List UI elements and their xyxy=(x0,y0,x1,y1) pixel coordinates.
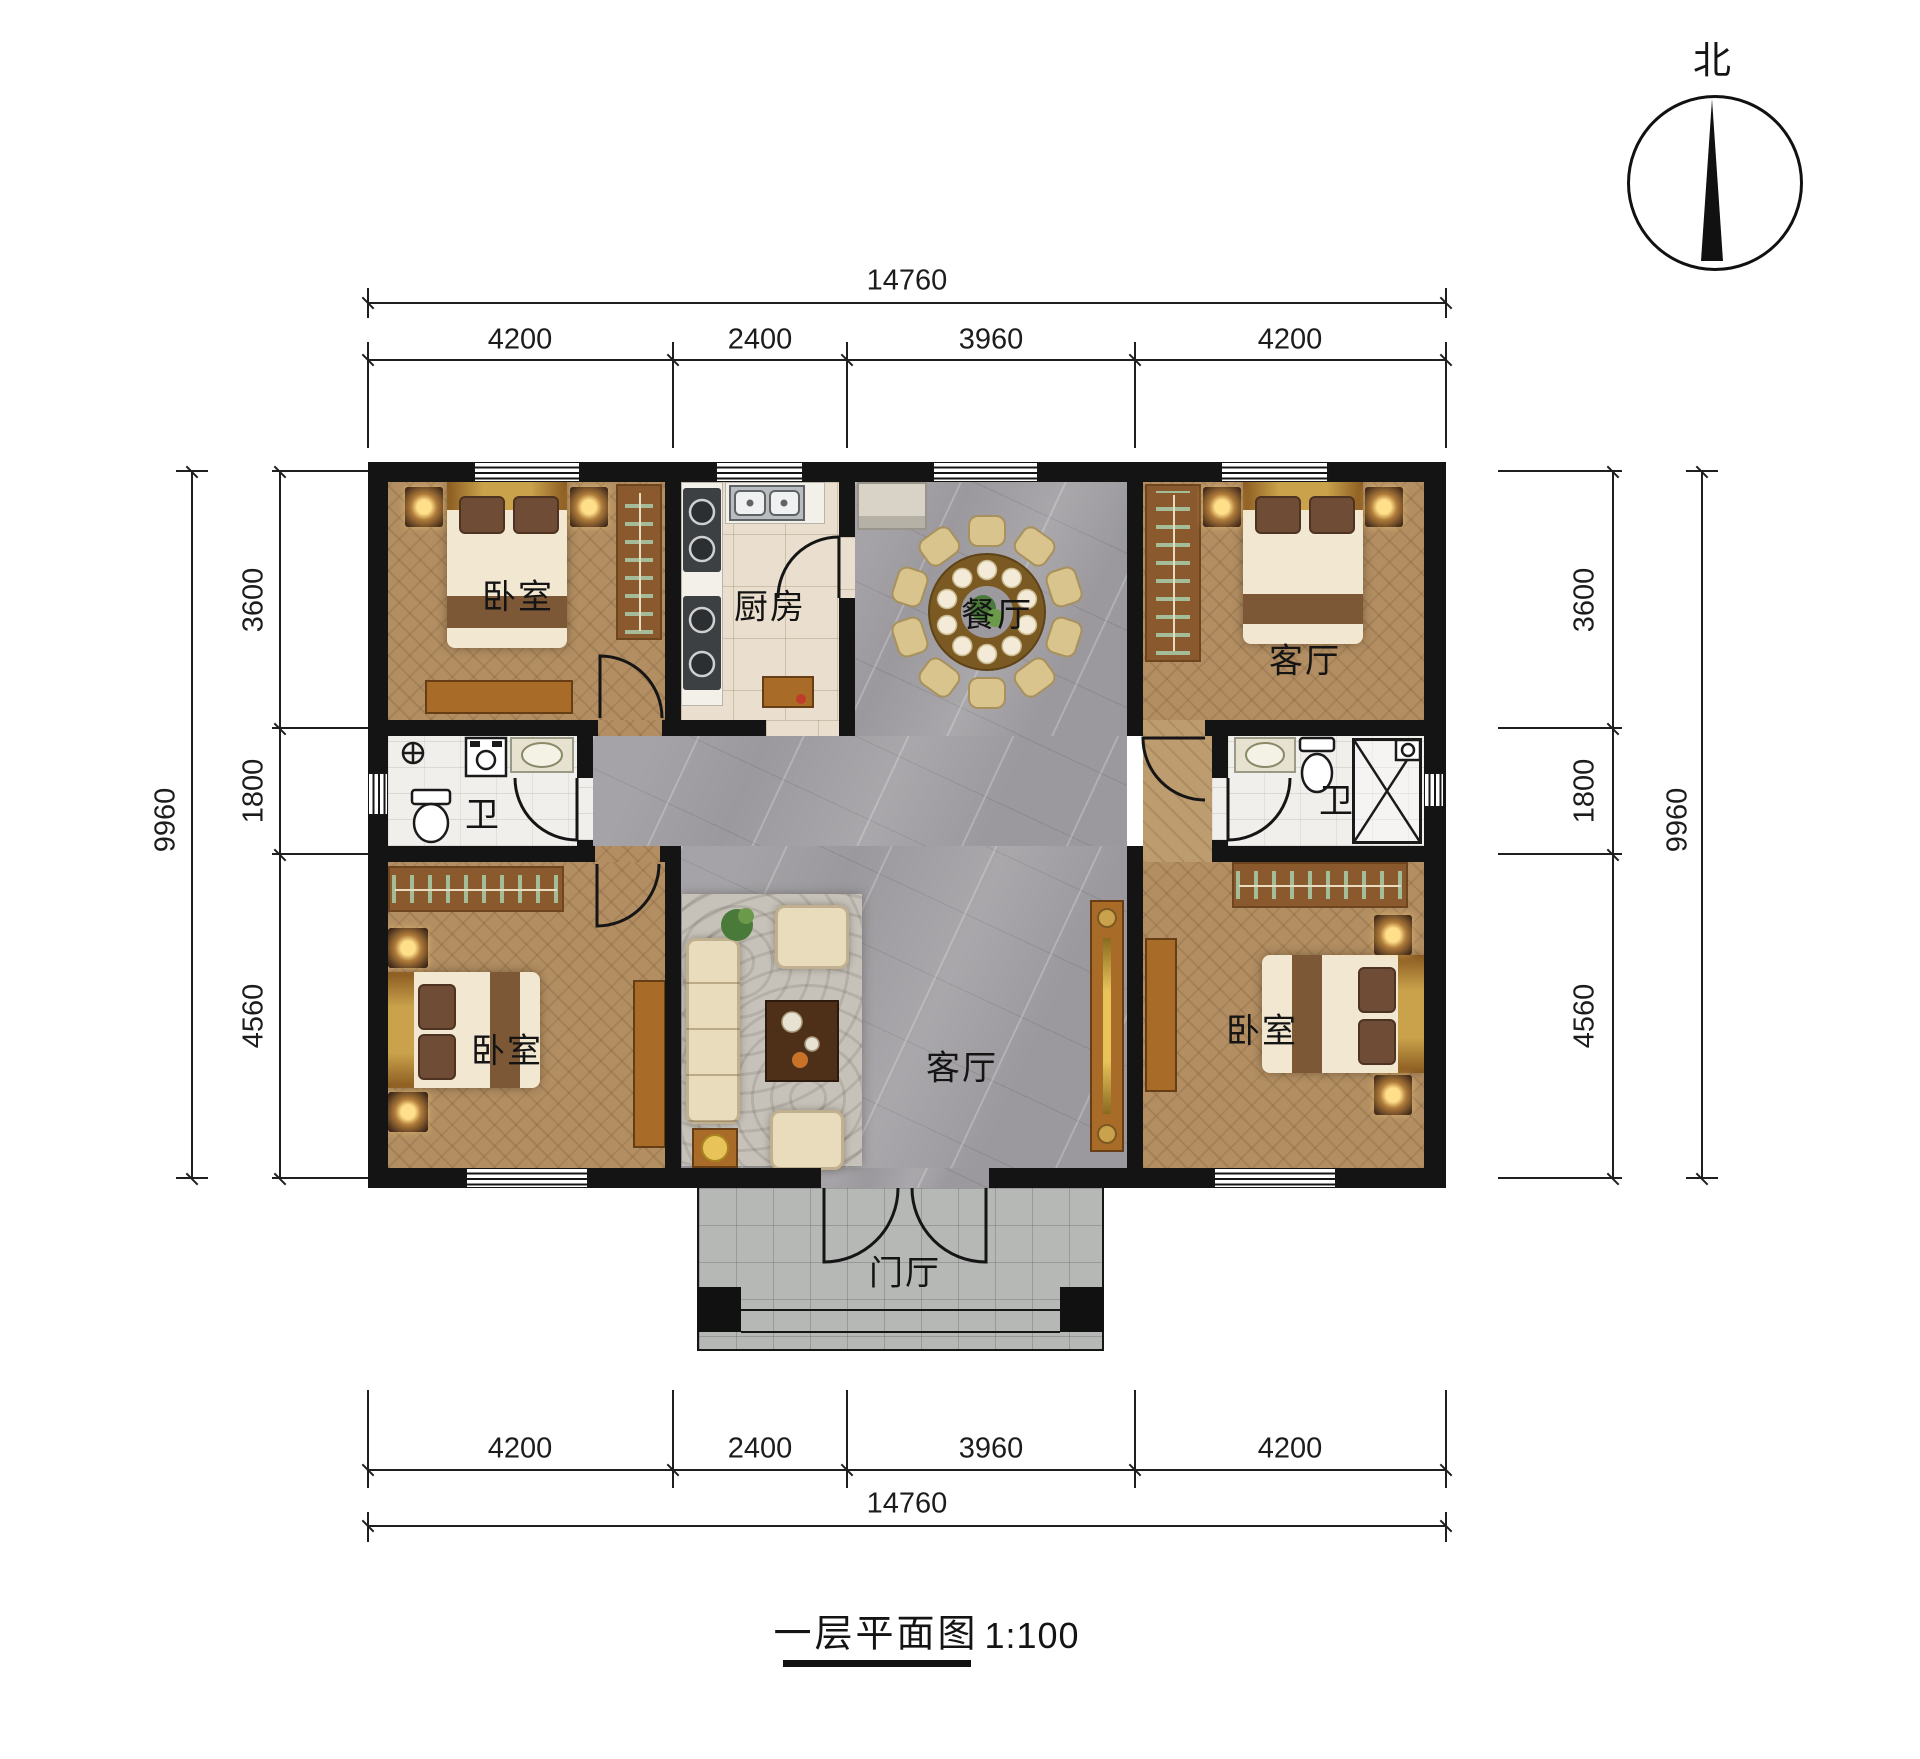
cutting-board-bowl xyxy=(796,694,806,704)
dim-tick xyxy=(1498,1177,1622,1179)
bed-top-left xyxy=(447,482,567,648)
dim-bottom-seg-1: 4200 xyxy=(488,1433,553,1466)
wall-mid-right xyxy=(1205,720,1424,736)
dim-line-bottom-total xyxy=(368,1525,1446,1527)
label-bedroom-bottom-right: 卧室 xyxy=(1226,1004,1298,1053)
label-dining: 餐厅 xyxy=(961,588,1033,637)
wall-bed3-top-a xyxy=(388,846,595,862)
wall-kitchen-dining-low xyxy=(839,598,855,736)
dim-bottom-total: 14760 xyxy=(867,1488,948,1521)
patch-bathL-door xyxy=(577,778,593,840)
wall-bathL-right-up xyxy=(577,736,593,778)
porch-pillar-left xyxy=(697,1287,741,1332)
patch-bathR-door xyxy=(1212,778,1228,840)
dim-tick xyxy=(1134,1390,1136,1488)
dim-top-seg-2: 2400 xyxy=(728,324,793,357)
vanity-left xyxy=(510,737,574,773)
compass-icon xyxy=(1627,95,1803,271)
dim-bottom-seg-4: 4200 xyxy=(1258,1433,1323,1466)
tv-console xyxy=(1090,900,1124,1152)
label-foyer: 门厅 xyxy=(869,1246,941,1295)
nightstand xyxy=(1374,1075,1412,1115)
kitchen-cutting-board xyxy=(762,676,814,708)
wardrobe-bottom-left xyxy=(388,866,564,912)
drawing-scale: 1:100 xyxy=(984,1615,1079,1657)
dim-tick xyxy=(672,1390,674,1488)
wall-bed4-top xyxy=(1212,846,1424,862)
wall-mid-left-b xyxy=(662,720,766,736)
floor-plan-canvas: 卧室 厨房 餐厅 客厅 卫 卫 卧室 客厅 卧室 门厅 14760 4200 2… xyxy=(0,0,1920,1759)
armchair-top xyxy=(775,905,849,969)
wardrobe-rail xyxy=(395,889,557,891)
dim-right-seg-3: 4560 xyxy=(1569,984,1602,1049)
bed-pillow xyxy=(418,984,456,1030)
wall-bed3-hall xyxy=(665,846,681,1168)
label-living-top-right: 客厅 xyxy=(1269,634,1341,683)
label-bath-right: 卫 xyxy=(1319,774,1355,823)
drawing-title: 一层平面图 xyxy=(773,1603,978,1658)
wall-outer-bottom-left xyxy=(368,1168,821,1188)
window-kitchen xyxy=(715,463,804,481)
dim-line-left-total xyxy=(191,471,193,1178)
floor-corridor xyxy=(593,736,1127,846)
bed-pillow xyxy=(1255,496,1301,534)
wall-outer-left xyxy=(368,462,388,1188)
label-kitchen: 厨房 xyxy=(734,580,806,629)
nightstand xyxy=(570,487,608,527)
dim-line-right-total xyxy=(1701,471,1703,1178)
window-bedroom-top-left xyxy=(473,463,581,481)
wall-kitchen-dining-up xyxy=(839,482,855,537)
wardrobe-bottom-right xyxy=(1232,862,1408,908)
dim-tick xyxy=(1498,470,1622,472)
window-bedroom-bottom-right xyxy=(1213,1169,1337,1187)
wardrobe-top-left xyxy=(616,484,662,640)
dim-tick xyxy=(846,1390,848,1488)
sofa xyxy=(686,938,740,1124)
dresser-bottom-left xyxy=(633,980,666,1148)
dresser-bottom-right xyxy=(1145,938,1177,1092)
dim-left-seg-1: 3600 xyxy=(238,568,271,633)
wardrobe-rail xyxy=(639,493,641,630)
dim-bottom-seg-3: 3960 xyxy=(959,1433,1024,1466)
wardrobe-rail xyxy=(1173,495,1175,652)
bed-pillow xyxy=(1358,967,1396,1013)
coffee-table xyxy=(765,1000,839,1082)
patch-entry-door xyxy=(821,1168,989,1188)
dim-left-total: 9960 xyxy=(150,788,183,853)
bed-pillow xyxy=(513,496,559,534)
bed-pillow xyxy=(459,496,505,534)
kitchen-stove-2 xyxy=(683,596,721,690)
patch-living2-door xyxy=(1143,720,1205,736)
nightstand xyxy=(1374,915,1412,955)
dim-tick xyxy=(1498,853,1622,855)
dim-line-left-seg xyxy=(279,471,281,1178)
bed-pillow xyxy=(418,1034,456,1080)
fridge xyxy=(857,482,927,530)
porch-step-line-2 xyxy=(741,1331,1060,1333)
dim-right-seg-2: 1800 xyxy=(1569,759,1602,824)
window-living-top-right xyxy=(1220,463,1329,481)
tv-screen xyxy=(1103,938,1111,1114)
dim-top-seg-1: 4200 xyxy=(488,324,553,357)
nightstand xyxy=(1365,487,1403,527)
wall-bathR-left-up xyxy=(1212,736,1228,778)
dim-line-bottom-seg xyxy=(368,1469,1446,1471)
dim-right-seg-1: 3600 xyxy=(1569,568,1602,633)
compass-north-label: 北 xyxy=(1693,30,1733,85)
side-table xyxy=(692,1128,738,1168)
window-dining xyxy=(932,463,1039,481)
dim-tick xyxy=(367,1390,369,1488)
label-living-center: 客厅 xyxy=(926,1041,998,1090)
wall-hall-bed4 xyxy=(1127,846,1143,1168)
wall-mid-left-a xyxy=(388,720,598,736)
dim-top-seg-4: 4200 xyxy=(1258,324,1323,357)
wall-dining-living2 xyxy=(1127,482,1143,736)
kitchen-stove-1 xyxy=(683,488,721,572)
dim-left-seg-3: 4560 xyxy=(238,984,271,1049)
floor-vestibule xyxy=(1143,736,1212,862)
window-bath-left xyxy=(369,772,387,816)
dim-left-seg-2: 1800 xyxy=(238,759,271,824)
window-bath-right xyxy=(1425,772,1443,808)
patch-bedroom1-door xyxy=(598,720,662,736)
bed-headboard xyxy=(1398,955,1424,1073)
dim-line-right-seg xyxy=(1612,471,1614,1178)
vanity-right xyxy=(1234,737,1296,773)
porch-pillar-right xyxy=(1060,1287,1104,1332)
kitchen-sink-counter xyxy=(725,482,825,524)
dim-top-seg-3: 3960 xyxy=(959,324,1024,357)
title-underline xyxy=(783,1660,971,1667)
bed-pillow xyxy=(1358,1019,1396,1065)
shower-stall xyxy=(1352,738,1422,844)
wall-outer-right xyxy=(1424,462,1446,1188)
dim-line-top-total xyxy=(368,302,1446,304)
nightstand xyxy=(1203,487,1241,527)
dim-bottom-seg-2: 2400 xyxy=(728,1433,793,1466)
dim-tick xyxy=(1498,727,1622,729)
bed-top-right xyxy=(1243,482,1363,644)
patch-kitchen-pass xyxy=(766,720,839,736)
desk-bedroom-top-left xyxy=(425,680,573,714)
nightstand xyxy=(388,928,428,968)
patch-bedroom3-door xyxy=(595,846,660,862)
bed-pillow xyxy=(1309,496,1355,534)
dim-top-total: 14760 xyxy=(867,265,948,298)
nightstand xyxy=(388,1092,428,1132)
label-bedroom-bottom-left: 卧室 xyxy=(471,1024,543,1073)
wardrobe-top-right xyxy=(1145,484,1201,662)
dim-right-total: 9960 xyxy=(1662,788,1695,853)
bed-foot-band xyxy=(1243,594,1363,624)
wall-bed1-kitchen xyxy=(665,482,681,720)
armchair-bottom xyxy=(770,1110,844,1170)
wardrobe-rail xyxy=(1239,885,1401,887)
window-bedroom-bottom-left xyxy=(465,1169,589,1187)
bed-headboard xyxy=(388,972,414,1088)
label-bedroom-top-left: 卧室 xyxy=(482,570,554,619)
label-bath-left: 卫 xyxy=(465,788,501,837)
nightstand xyxy=(405,487,443,527)
dim-tick xyxy=(1445,1390,1447,1488)
porch-step-line-1 xyxy=(741,1309,1060,1311)
patch-kitchen-door xyxy=(839,537,855,598)
dim-line-top-seg xyxy=(368,359,1446,361)
